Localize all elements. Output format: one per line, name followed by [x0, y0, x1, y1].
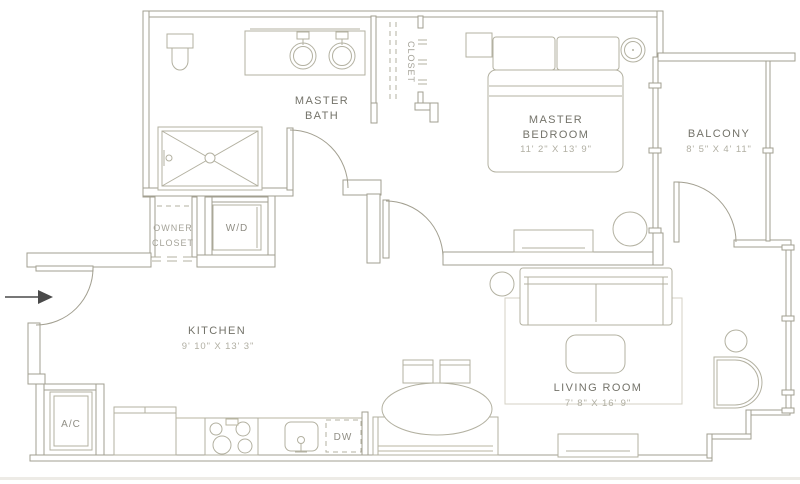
chair-side-table: [725, 330, 747, 352]
dishwasher-label: DW: [334, 432, 353, 443]
floor-plan-page: MASTER BATH CLOSET MASTER BEDROOM 11' 2"…: [0, 0, 800, 484]
balcony-door: [674, 182, 736, 242]
page-bottom-divider: [0, 477, 800, 480]
shower: [158, 127, 262, 190]
owner-closet-interior: [152, 206, 192, 261]
master-bedroom-label-line2: BEDROOM: [523, 129, 590, 141]
master-bedroom-label-line1: MASTER: [529, 114, 583, 126]
master-bath-label-line1: MASTER: [295, 95, 349, 107]
sofa: [520, 268, 672, 325]
kitchen-sink: [285, 422, 318, 452]
balcony-dims: 8' 5" X 4' 11": [686, 144, 752, 155]
bedroom-round-table: [613, 212, 647, 246]
closet-label: CLOSET: [406, 41, 416, 83]
tv-console: [558, 434, 638, 457]
washer-dryer-label: W/D: [226, 223, 248, 234]
balcony-railing: [763, 61, 773, 241]
kitchen-label: KITCHEN: [188, 325, 246, 337]
nightstand: [466, 33, 492, 57]
ac-label: A/C: [61, 419, 81, 430]
owner-closet-label-line2: CLOSET: [152, 238, 194, 248]
living-room-label: LIVING ROOM: [554, 382, 643, 394]
entry-arrow-icon: [5, 290, 53, 304]
living-room-window: [782, 245, 794, 413]
round-side-table: [621, 38, 645, 62]
master-bedroom-dims: 11' 2" X 13' 9": [520, 144, 592, 155]
toilet: [167, 34, 193, 70]
coffee-table: [566, 335, 625, 373]
bath-door: [287, 128, 348, 190]
vanity-double-sink: [245, 29, 365, 75]
floor-plan-drawing: MASTER BATH CLOSET MASTER BEDROOM 11' 2"…: [0, 0, 800, 484]
master-bath-label-line2: BATH: [305, 110, 339, 122]
bedroom-door: [383, 200, 443, 258]
accent-chair: [714, 357, 762, 408]
balcony-label: BALCONY: [688, 128, 750, 140]
sofa-side-table: [490, 272, 514, 296]
refrigerator: [114, 407, 176, 455]
kitchen-island: [373, 360, 498, 455]
living-room-dims: 7' 8" X 16' 9": [565, 398, 631, 409]
stove: [205, 418, 258, 455]
owner-closet-label-line1: OWNER: [153, 223, 193, 233]
bedroom-window: [649, 83, 661, 233]
bedroom-dresser: [514, 230, 593, 252]
kitchen-dims: 9' 10" X 13' 3": [182, 341, 254, 352]
